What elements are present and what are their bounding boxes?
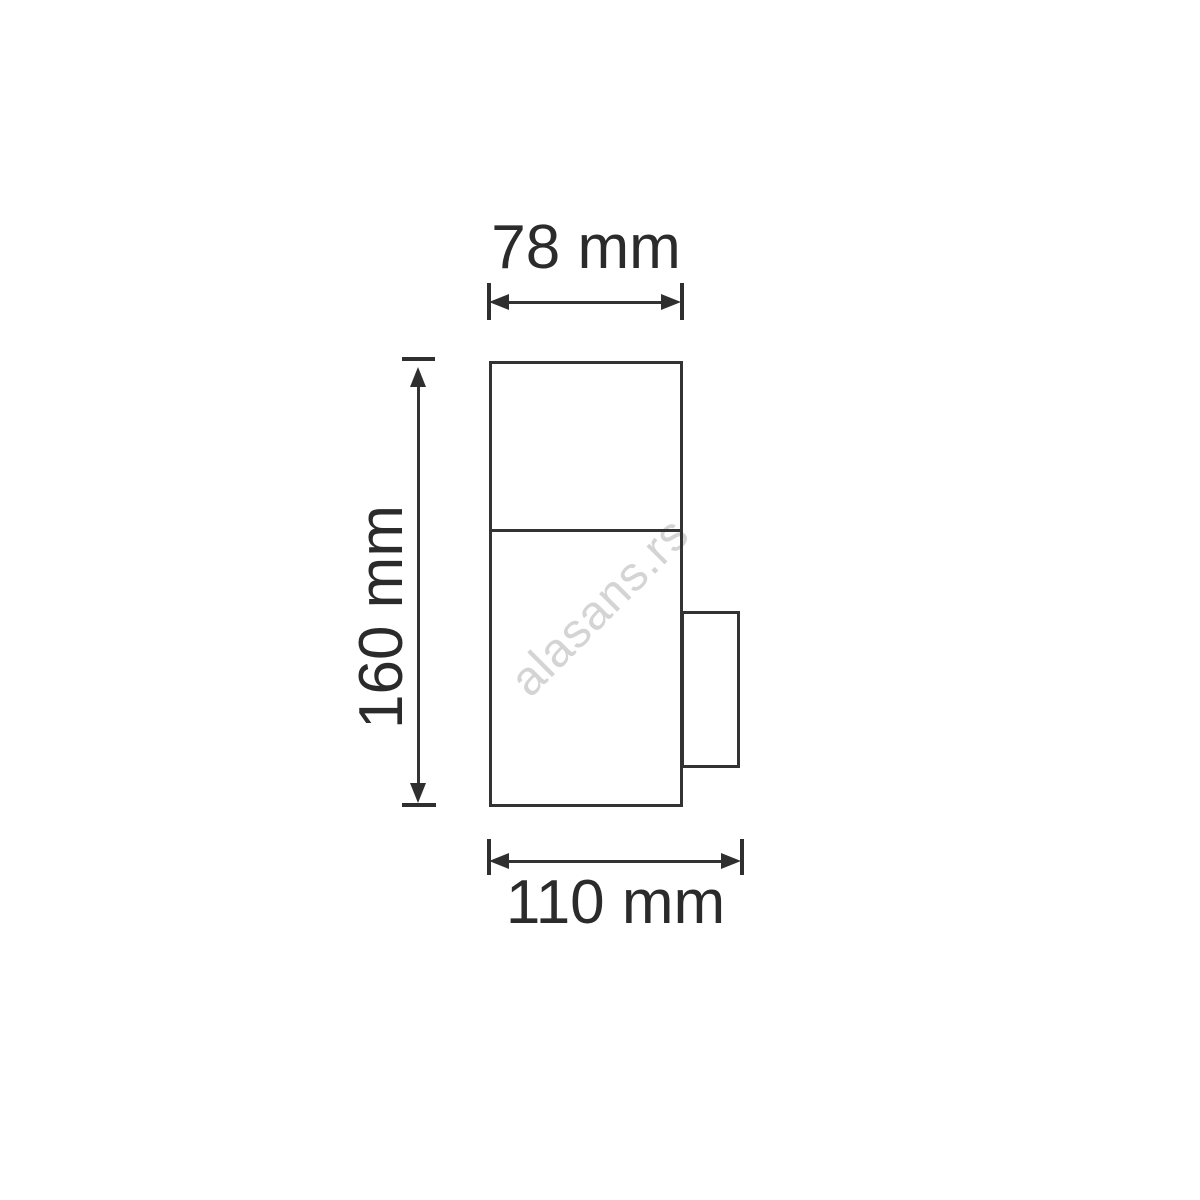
bottom-dimension-label: 110 mm	[489, 872, 742, 934]
fixture-body-outline	[489, 361, 683, 807]
mount-bracket-outline	[681, 611, 740, 768]
height-dimension-tick-top	[402, 357, 435, 361]
drawing-canvas: alasans.rs 78 mm 160 mm 110 mm	[0, 0, 1200, 1200]
bottom-dimension-arrow-left	[489, 853, 509, 869]
fixture-body-divider	[489, 529, 683, 532]
top-dimension-line	[498, 301, 673, 304]
height-dimension-arrow-up	[410, 367, 426, 387]
height-dimension-arrow-down	[410, 783, 426, 803]
bottom-dimension-arrow-right	[721, 853, 741, 869]
bottom-dimension-line	[498, 860, 734, 863]
height-dimension-line	[417, 378, 420, 798]
top-dimension-arrow-left	[489, 294, 509, 310]
top-dimension-label: 78 mm	[489, 217, 683, 279]
top-dimension-arrow-right	[661, 294, 681, 310]
height-dimension-tick-bottom	[402, 803, 436, 807]
